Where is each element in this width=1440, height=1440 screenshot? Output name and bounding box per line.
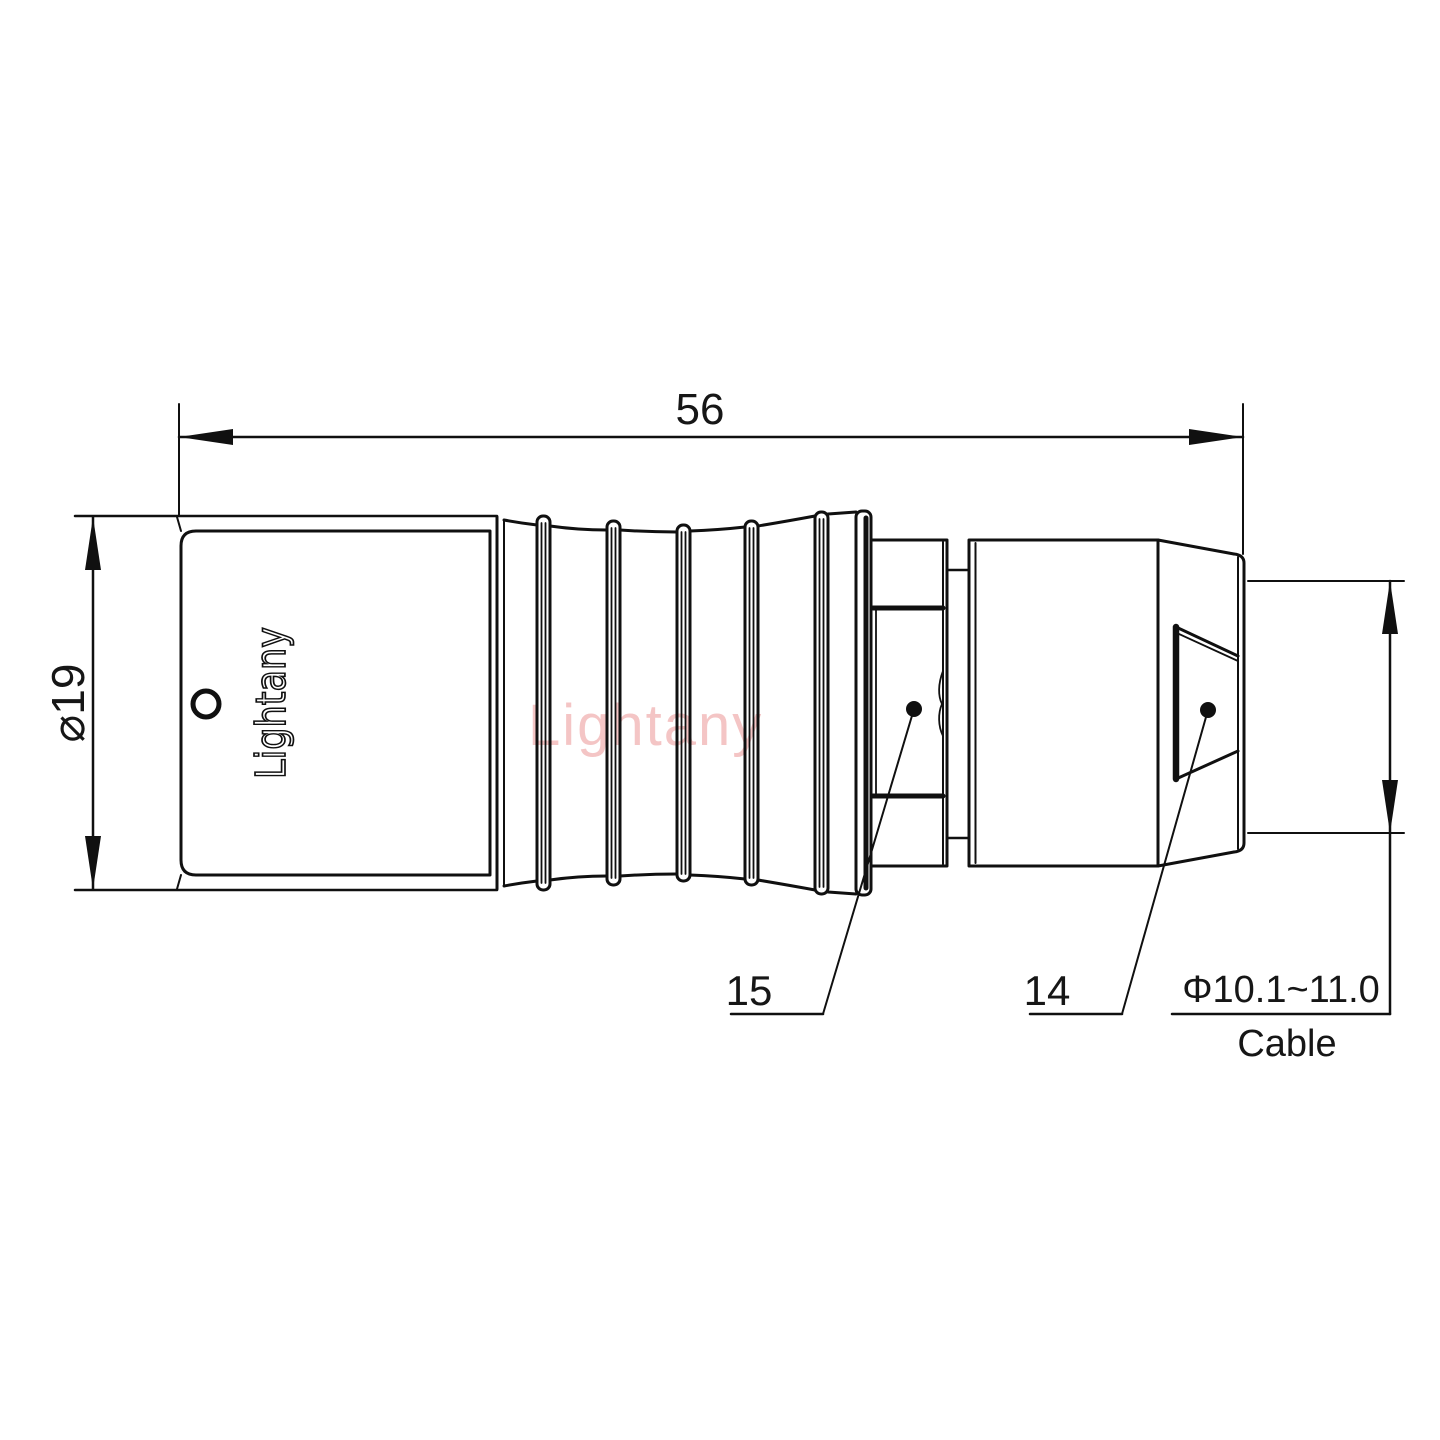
arrowhead-down [85, 836, 101, 889]
cable-label: Cable [1237, 1023, 1336, 1065]
rib [745, 521, 758, 885]
rib-inner [682, 532, 686, 874]
grip-bottom-seg [758, 880, 815, 890]
label15-value: 15 [726, 967, 773, 1014]
dimension-diameter-19: ⌀19 [42, 517, 101, 889]
grip-sleeve [504, 511, 871, 895]
arrowhead-left [179, 429, 233, 445]
window-bottom-edge [1176, 751, 1238, 779]
grip-bottom-seg [620, 874, 677, 876]
grip-top-seg [504, 520, 537, 525]
grip-top-seg [620, 530, 677, 532]
window-top-edge [1176, 627, 1238, 656]
dim56-value: 56 [676, 385, 725, 434]
rib [677, 525, 690, 881]
coupling-nut [871, 540, 969, 866]
dimension-cable: Φ10.1~11.0 Cable [1172, 581, 1404, 1065]
rib-inner [820, 519, 824, 887]
grip-top-seg [690, 527, 745, 531]
grip-bottom-seg [504, 881, 537, 886]
cable-diameter-value: Φ10.1~11.0 [1182, 969, 1380, 1011]
nut-flat-edges [873, 608, 943, 796]
grip-bottom-seg [828, 892, 856, 894]
grip-top-seg [550, 526, 607, 530]
connector-drawing: Lightany [0, 0, 1440, 1440]
window-top-inner [1179, 634, 1238, 661]
arrowhead-up [85, 517, 101, 570]
grip-top-seg [758, 516, 815, 526]
groove-shaft-lines [947, 570, 969, 838]
grip-ribs [537, 512, 828, 894]
rib [537, 516, 550, 890]
technical-drawing-canvas: Lightany Lightany [0, 0, 1440, 1440]
front-face-outline [181, 531, 490, 875]
label14-value: 14 [1024, 967, 1071, 1014]
rib-inner [750, 528, 754, 878]
dia19-value: ⌀19 [42, 664, 94, 743]
arrowhead-down [1382, 780, 1398, 833]
rib [815, 512, 828, 894]
grip-top-seg [828, 512, 856, 514]
cable-extension-lines [1248, 581, 1404, 833]
arrowhead-up [1382, 581, 1398, 634]
grip-bottom-seg [550, 876, 607, 880]
connector-front-shell: Lightany [75, 516, 504, 890]
grip-bottom-seg [690, 875, 745, 879]
engraved-brand-text: Lightany [247, 627, 295, 779]
backshell [969, 540, 1244, 866]
shell-hole [193, 691, 219, 717]
rib [607, 521, 620, 885]
rib-inner [542, 523, 546, 883]
rib-inner [612, 528, 616, 878]
backshell-body [969, 540, 1158, 866]
cone-slants [1158, 540, 1234, 866]
arrowhead-right [1189, 429, 1243, 445]
